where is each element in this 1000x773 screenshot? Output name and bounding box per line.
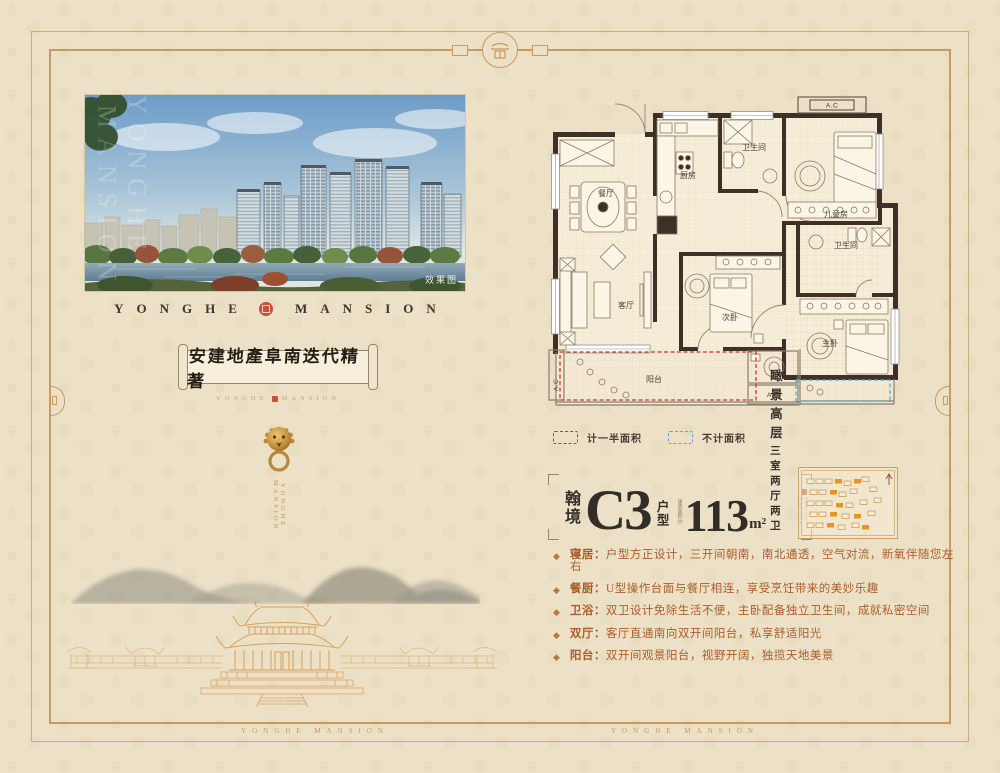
site-key-plan xyxy=(798,467,898,539)
feature-row: ◆ 双厅：客厅直通南向双开间阳台，私享舒适阳光 xyxy=(549,628,964,641)
feature-label: 阳台： xyxy=(570,650,606,662)
frame-seal-emblem xyxy=(482,32,518,68)
scroll-sub-left: YONGHE xyxy=(216,395,267,402)
lion-knocker-icon xyxy=(259,424,299,476)
unit-area-note: 建筑面积约 xyxy=(676,499,683,529)
feature-row: ◆ 卫浴：双卫设计免除生活不便，主卧配备独立卫生间，成就私密空间 xyxy=(549,605,964,618)
knocker-brand: YONGHE MANSION xyxy=(265,476,293,536)
brand-left: YONGHE xyxy=(101,301,250,317)
hero-rendering: MANSION YONGHE 效果图 xyxy=(85,95,465,291)
feature-list: ◆ 寝居：户型方正设计，三开间朝南，南北通透，空气对流，新氧伴随您左右 ◆ 餐厨… xyxy=(549,549,964,673)
calligraphy-scroll: 安建地產阜南迭代精著 xyxy=(178,344,378,390)
legend-half-area-swatch xyxy=(553,431,578,444)
brand-row: YONGHE MANSION xyxy=(85,301,465,317)
cityscape-rendering-image: MANSION YONGHE 效果图 xyxy=(85,95,465,291)
room-label-living: 客厅 xyxy=(618,300,634,310)
room-label-bath1: 卫生间 xyxy=(742,142,766,152)
feature-label: 卫浴： xyxy=(570,605,606,617)
ac-label-left: A.C xyxy=(553,379,560,391)
unit-tag-rooms: 三室两厅两卫 xyxy=(770,443,785,533)
unit-area-unit: m² xyxy=(749,516,766,533)
floorplan-legend: 计一半面积 不计面积 xyxy=(553,430,746,445)
floorplan-drawing: 餐厅 厨房 卫生间 儿童房 卫生间 客厅 次卧 主卧 阳台 A.C A.C A.… xyxy=(548,94,900,426)
diamond-bullet-icon: ◆ xyxy=(553,651,560,663)
bracket-top-left xyxy=(548,474,559,485)
ac-label-top: A.C xyxy=(826,103,838,110)
feature-text: 双开间观景阳台，视野开阔，独揽天地美景 xyxy=(606,650,834,662)
feature-text: 户型方正设计，三开间朝南，南北通透，空气对流，新氧伴随您左右 xyxy=(570,549,954,573)
legend-no-area-swatch xyxy=(668,431,693,444)
diamond-bullet-icon: ◆ xyxy=(553,629,560,641)
frame-cap-right xyxy=(532,45,548,56)
legend-no-area-label: 不计面积 xyxy=(702,430,746,445)
feature-row: ◆ 寝居：户型方正设计，三开间朝南，南北通透，空气对流，新氧伴随您左右 xyxy=(549,549,964,573)
mountains-illustration xyxy=(70,530,480,604)
lion-knocker-emblem xyxy=(259,424,299,476)
hero-vertical-watermark-1: YONGHE xyxy=(123,95,152,259)
footer-watermark: YONGHE MANSION YONGHE MANSION xyxy=(0,727,1000,735)
room-label-dining: 餐厅 xyxy=(598,189,614,198)
palace-line-art xyxy=(52,596,512,708)
feature-label: 寝居： xyxy=(570,549,606,561)
feature-label: 双厅： xyxy=(570,628,606,640)
unit-tags: 瞰景高层 三室两厅两卫 xyxy=(770,365,785,533)
scroll-roll-right xyxy=(368,344,378,390)
site-key-inner xyxy=(801,470,895,536)
legend-item-none: 不计面积 xyxy=(668,430,746,445)
floorplan: 餐厅 厨房 卫生间 儿童房 卫生间 客厅 次卧 主卧 阳台 A.C A.C A.… xyxy=(548,94,900,431)
feature-text: 双卫设计免除生活不便，主卧配备独立卫生间，成就私密空间 xyxy=(606,605,930,617)
room-label-master: 主卧 xyxy=(822,338,838,348)
feature-row: ◆ 阳台：双开间观景阳台，视野开阔，独揽天地美景 xyxy=(549,650,964,663)
room-label-kitchen: 厨房 xyxy=(680,170,696,180)
palace-illustration xyxy=(52,596,512,713)
diamond-bullet-icon: ◆ xyxy=(553,606,560,618)
site-key-map xyxy=(802,471,896,537)
legend-half-area-label: 计一半面积 xyxy=(587,430,642,445)
north-arrow-icon xyxy=(886,474,892,485)
pavilion-seal-icon xyxy=(488,38,512,62)
scroll-subtitle: YONGHE MANSION xyxy=(178,395,378,402)
feature-label: 餐厨： xyxy=(570,583,606,595)
frame-cap-left xyxy=(452,45,468,56)
unit-title-block: 翰境 C3 户型 建筑面积约 113 m² 瞰景高层 三室两厅两卫 YONGHE… xyxy=(548,474,812,540)
room-label-kids: 儿童房 xyxy=(824,209,848,219)
bracket-bottom-left xyxy=(548,529,559,540)
feature-text: 客厅直通南向双开间阳台，私享舒适阳光 xyxy=(606,628,822,640)
room-label-bath2: 卫生间 xyxy=(834,240,858,250)
unit-type-label: 户型 xyxy=(653,500,672,532)
feature-text: U型操作台面与餐厅相连，享受烹饪带来的美妙乐趣 xyxy=(606,583,879,595)
knocker-brand-text: YONGHE MANSION xyxy=(272,476,286,536)
diamond-bullet-icon: ◆ xyxy=(553,550,560,562)
brochure-page: MANSION YONGHE 效果图 YONGHE MANSION 安建地產阜南… xyxy=(0,0,1000,773)
rendering-watermark: 效果图 xyxy=(425,274,458,285)
footer-watermark-right: YONGHE MANSION xyxy=(611,727,759,735)
calligraphy-text: 安建地產阜南迭代精著 xyxy=(186,342,369,392)
unit-tag-view: 瞰景高层 xyxy=(770,365,785,441)
unit-series: 翰境 xyxy=(558,490,582,532)
footer-watermark-left: YONGHE MANSION xyxy=(241,727,389,735)
brand-seal-icon xyxy=(259,302,273,316)
feature-row: ◆ 餐厨：U型操作台面与餐厅相连，享受烹饪带来的美妙乐趣 xyxy=(549,583,964,596)
unit-area-value: 113 xyxy=(685,496,748,535)
diamond-bullet-icon: ◆ xyxy=(553,584,560,596)
hero-vertical-watermark-2: MANSION xyxy=(93,105,122,289)
unit-code: C3 xyxy=(585,488,651,535)
room-label-balcony: 阳台 xyxy=(646,374,662,384)
scroll-seal-icon xyxy=(272,396,278,402)
scroll-body: 安建地產阜南迭代精著 xyxy=(188,350,368,384)
legend-item-half: 计一半面积 xyxy=(553,430,642,445)
room-label-bed2: 次卧 xyxy=(722,312,738,322)
brand-right: MANSION xyxy=(282,301,449,317)
scroll-sub-right: MANSION xyxy=(282,395,340,402)
